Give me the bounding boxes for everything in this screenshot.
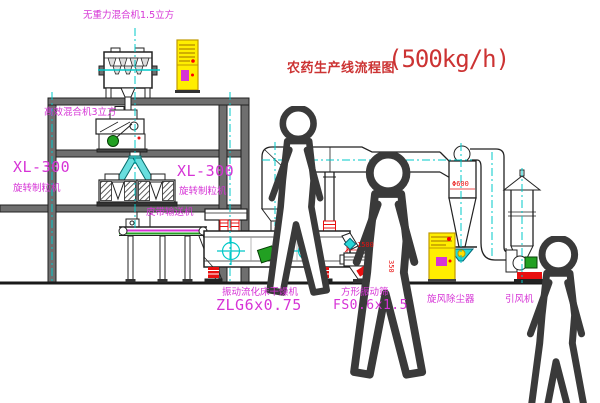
control-cabinet-upper (175, 40, 200, 93)
fan-base (517, 272, 542, 279)
label-dryer-model: ZLG6x0.75 (216, 298, 302, 313)
label-granulator-model-right: XL-300 (177, 164, 234, 179)
label-belt-conveyor: 皮带输送机 (146, 208, 194, 218)
label-granulator-name-right: 旋转制粒机 (179, 187, 227, 197)
control-cabinet-lower (428, 233, 456, 282)
granulator-right (135, 174, 177, 206)
diagram-canvas: 农药生产线流程图 (500kg/h) 无重力混合机1.5立方 高效混合机3立方 … (0, 0, 600, 403)
label-sieve-name: 方形振动筛 (341, 288, 389, 298)
granulator-left (97, 174, 139, 206)
diagram-title: 农药生产线流程图 (287, 57, 395, 76)
cabinet-text-blob (436, 257, 447, 266)
label-granulator-model-left: XL-300 (13, 160, 70, 175)
label-gravity-free-mixer: 无重力混合机1.5立方 (83, 11, 174, 21)
dim-sieve-height: 350 (387, 260, 394, 273)
dim-sieve-length: 1500 (357, 242, 374, 249)
label-fan: 引风机 (505, 295, 534, 305)
label-cyclone: 旋风除尘器 (427, 295, 475, 305)
label-sieve-model: FS0.6x1.5 (333, 299, 408, 312)
cabinet-text-blob (181, 70, 189, 81)
diagram-capacity: (500kg/h) (388, 45, 509, 73)
label-high-efficiency-mixer: 高效混合机3立方 (44, 108, 117, 118)
downcomer-duct (481, 157, 508, 264)
fan-motor (525, 257, 537, 268)
label-granulator-name-left: 旋转制粒机 (13, 184, 61, 194)
dim-cyclone-diameter: Φ600 (452, 181, 469, 188)
